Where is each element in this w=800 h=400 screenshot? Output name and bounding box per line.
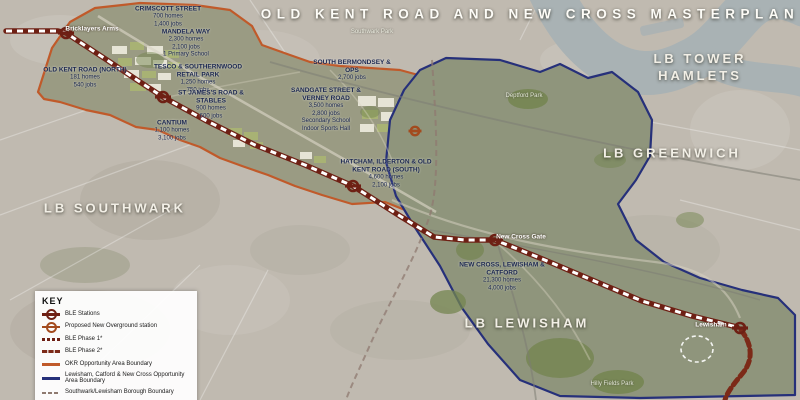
development-stat: 3,500 homes xyxy=(280,103,372,111)
key-item: BLE Stations xyxy=(42,309,190,319)
key-item: Proposed New Overground station xyxy=(42,322,190,332)
key-item: Lewisham, Catford & New Cross Opportunit… xyxy=(42,372,190,386)
development-stat: 2,700 jobs xyxy=(306,75,398,83)
development-label-sandgate-verney: SANDGATE STREET & VERNEY ROAD 3,500 home… xyxy=(280,87,372,133)
overground-station-roundel-icon xyxy=(42,322,60,332)
development-stat: 181 homes xyxy=(43,75,126,83)
key-item: Southwark/Lewisham Borough Boundary xyxy=(42,388,190,398)
key-item-label: Proposed New Overground station xyxy=(65,323,157,330)
development-stat: 2,100 jobs xyxy=(340,182,432,190)
key-item: BLE Phase 2* xyxy=(42,347,190,357)
lewisham-boundary-line-icon xyxy=(42,373,60,383)
key-item-label: Lewisham, Catford & New Cross Opportunit… xyxy=(65,372,190,386)
station-label-lewisham: Lewisham xyxy=(695,322,726,329)
development-label-mandela-way: MANDELA WAY 2,300 homes 2,100 jobs 1 Pri… xyxy=(162,29,210,60)
map-title: OLD KENT ROAD AND NEW CROSS MASTERPLAN xyxy=(261,7,800,22)
development-name: OLD KENT ROAD (NORTH) xyxy=(43,66,126,74)
key-item-label: OKR Opportunity Area Boundary xyxy=(65,361,152,368)
ble-station-roundel-icon xyxy=(42,309,60,319)
borough-label-lewisham: LB LEWISHAM xyxy=(465,316,590,331)
key-item-label: BLE Phase 2* xyxy=(65,348,102,355)
development-stat: 700 homes xyxy=(135,14,201,22)
development-stat: 540 jobs xyxy=(43,82,126,90)
key-item-label: Southwark/Lewisham Borough Boundary xyxy=(65,389,174,396)
development-stat: Indoor Sports Hall xyxy=(280,126,372,134)
development-name: MANDELA WAY xyxy=(162,29,210,37)
development-stat: 1,100 homes xyxy=(155,128,190,136)
park-label-deptford-park: Deptford Park xyxy=(505,93,542,99)
development-name: NEW CROSS, LEWISHAM & CATFORD xyxy=(456,261,548,277)
key-item: OKR Opportunity Area Boundary xyxy=(42,359,190,369)
key-legend: KEY BLE Stations Proposed New Overground… xyxy=(35,291,197,400)
borough-label-tower-hamlets: LB TOWER HAMLETS xyxy=(644,51,756,85)
development-stat: 900 homes xyxy=(165,106,257,114)
development-label-st-jamess-road: ST JAMES'S ROAD & STABLES 900 homes 600 … xyxy=(165,89,257,120)
station-label-new-cross-gate: New Cross Gate xyxy=(496,234,546,241)
development-label-south-bermondsey: SOUTH BERMONDSEY & OPS 2,700 jobs xyxy=(306,59,398,83)
development-name: CRIMSCOTT STREET xyxy=(135,5,201,13)
ble-phase1-line-icon xyxy=(42,334,60,344)
station-label-bricklayers-arms: Bricklayers Arms xyxy=(65,26,118,33)
development-stat: 1,400 jobs xyxy=(135,21,201,29)
key-title: KEY xyxy=(42,296,190,306)
okr-boundary-line-icon xyxy=(42,359,60,369)
masterplan-map: OLD KENT ROAD AND NEW CROSS MASTERPLAN L… xyxy=(0,0,800,400)
development-stat: 2,300 homes xyxy=(162,37,210,45)
park-label-southwark-park: Southwark Park xyxy=(351,29,393,35)
development-label-crimscott-street: CRIMSCOTT STREET 700 homes 1,400 jobs xyxy=(135,5,201,28)
development-stat: 2,100 jobs xyxy=(162,44,210,52)
development-name: CANTIUM xyxy=(155,119,190,127)
development-stat: 1 Primary School xyxy=(162,52,210,60)
borough-boundary-line-icon xyxy=(42,388,60,398)
development-stat: 3,100 jobs xyxy=(155,135,190,143)
development-stat: 4,600 homes xyxy=(340,175,432,183)
development-stat: 21,300 homes xyxy=(456,278,548,286)
development-label-new-cross-lewisham-catford: NEW CROSS, LEWISHAM & CATFORD 21,300 hom… xyxy=(456,261,548,292)
key-item-label: BLE Phase 1* xyxy=(65,336,102,343)
ble-phase2-line-icon xyxy=(42,347,60,357)
key-item-label: BLE Stations xyxy=(65,311,100,318)
development-label-okr-north: OLD KENT ROAD (NORTH) 181 homes 540 jobs xyxy=(43,66,126,89)
development-stat: 4,000 jobs xyxy=(456,285,548,293)
development-name: SOUTH BERMONDSEY & OPS xyxy=(306,59,398,75)
development-stat: 1,250 homes xyxy=(152,80,244,88)
park-label-hilly-fields: Hilly Fields Park xyxy=(590,381,633,387)
borough-label-greenwich: LB GREENWICH xyxy=(603,146,741,161)
development-label-hatcham-ilderton: HATCHAM, ILDERTON & OLD KENT ROAD (SOUTH… xyxy=(340,158,432,189)
development-name: ST JAMES'S ROAD & STABLES xyxy=(165,89,257,105)
development-name: TESCO & SOUTHERNWOOD RETAIL PARK xyxy=(152,63,244,79)
development-stat: Secondary School xyxy=(280,118,372,126)
development-name: HATCHAM, ILDERTON & OLD KENT ROAD (SOUTH… xyxy=(340,158,432,174)
development-name: SANDGATE STREET & VERNEY ROAD xyxy=(280,87,372,103)
key-item: BLE Phase 1* xyxy=(42,334,190,344)
development-label-cantium: CANTIUM 1,100 homes 3,100 jobs xyxy=(155,119,190,142)
borough-label-southwark: LB SOUTHWARK xyxy=(44,201,186,216)
